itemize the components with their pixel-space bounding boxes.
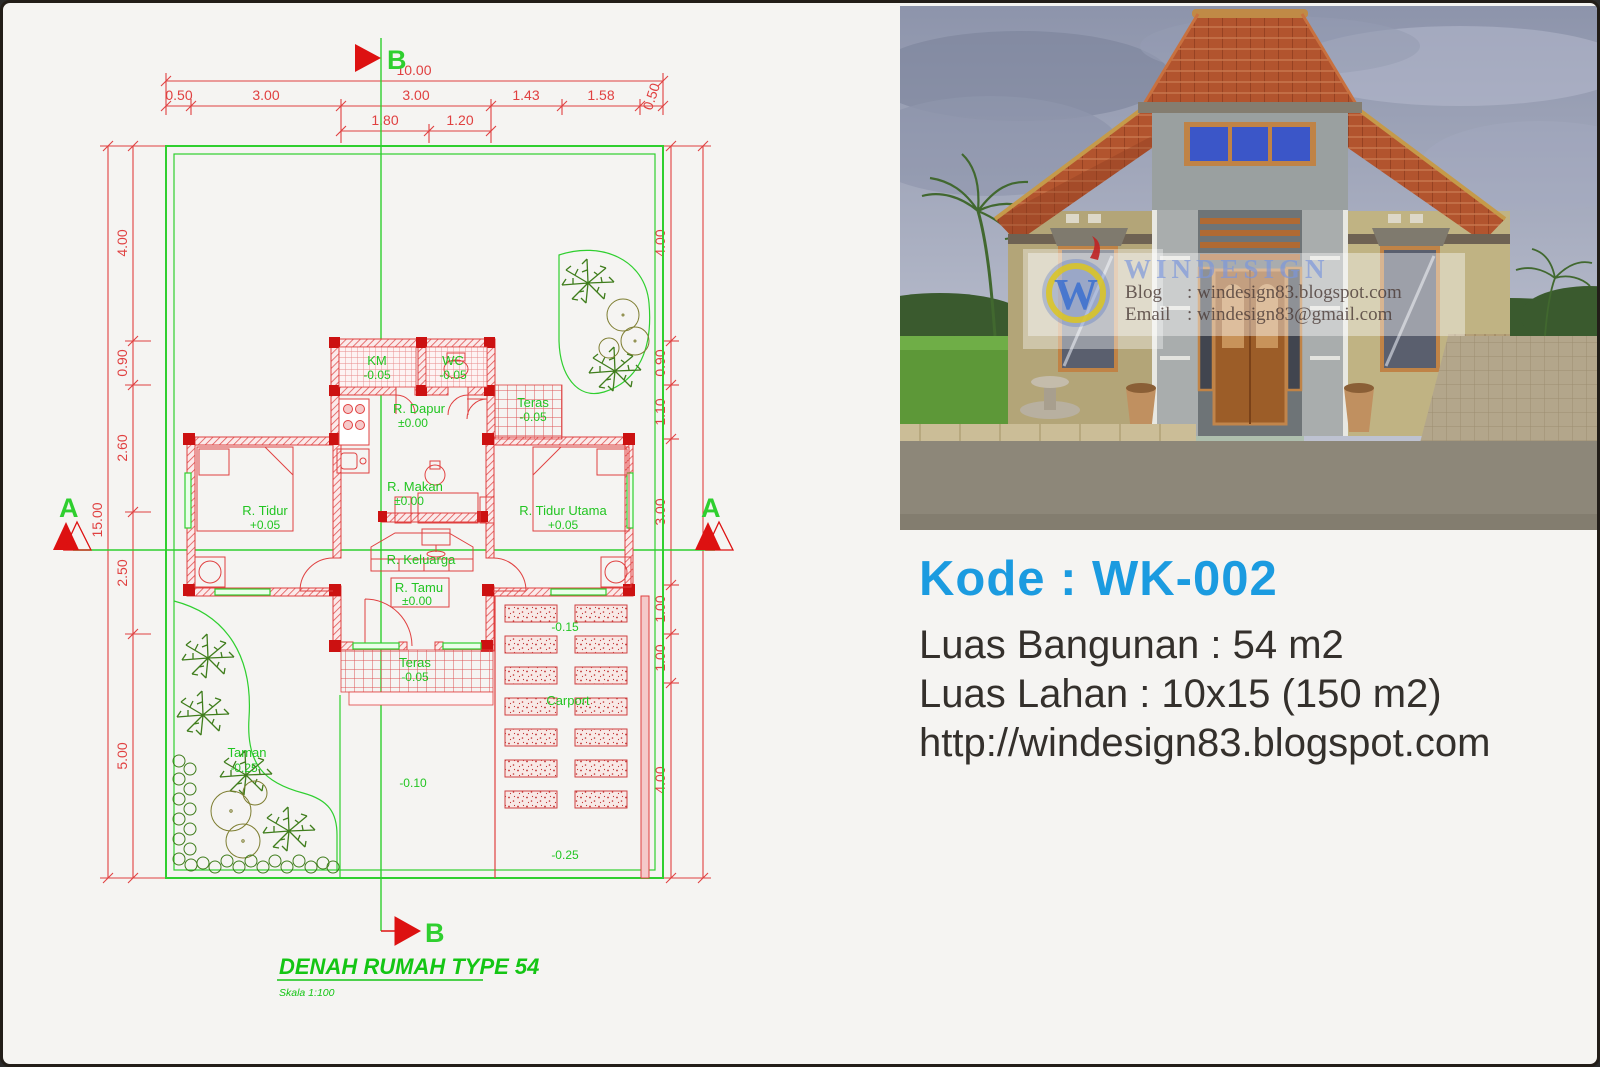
section-b-top-arrow [355, 44, 381, 72]
page: 10.00 0.50 3.00 3.00 1.43 1.58 0.50 1.80… [0, 0, 1600, 1067]
svg-text:2.50: 2.50 [114, 559, 130, 586]
svg-text:2.60: 2.60 [114, 434, 130, 461]
section-a-right-label: A [701, 493, 721, 523]
label-keluarga: R. Keluarga [387, 552, 456, 567]
section-a-left-label: A [59, 493, 79, 523]
watermark-blog-value: : windesign83.blogspot.com [1187, 282, 1402, 303]
watermark-logo-letter: W [1054, 270, 1098, 319]
svg-text:-0.05: -0.05 [363, 368, 391, 382]
garden-back [559, 250, 650, 393]
svg-text:3.00: 3.00 [402, 87, 429, 103]
spot-level-carport-upper: -0.15 [551, 620, 579, 634]
plan-scale: Skala 1:100 [279, 987, 335, 999]
label-teras-depan: Teras [399, 655, 431, 670]
dim-left-overall: 15.00 [89, 502, 105, 537]
svg-text:±0.00: ±0.00 [394, 494, 424, 508]
code-heading: Kode : WK-002 [919, 551, 1278, 607]
driveway [1416, 336, 1600, 458]
label-tamu: R. Tamu [395, 580, 443, 595]
svg-text:1.58: 1.58 [587, 87, 614, 103]
svg-text:0.50: 0.50 [639, 81, 663, 112]
curb [900, 424, 1196, 441]
svg-text:±0.00: ±0.00 [402, 594, 432, 608]
svg-text:-0.25: -0.25 [230, 761, 258, 775]
watermark-email-value: : windesign83@gmail.com [1187, 304, 1393, 325]
svg-text:3.00: 3.00 [252, 87, 279, 103]
svg-text:-0.05: -0.05 [401, 670, 429, 684]
carport [340, 596, 649, 878]
label-wc: WC [442, 353, 464, 368]
svg-text:-0.05: -0.05 [439, 368, 467, 382]
spot-level-walkway: -0.10 [399, 776, 427, 790]
label-carport: Carport [546, 693, 590, 708]
svg-text:-0.05: -0.05 [519, 410, 547, 424]
svg-text:0.90: 0.90 [114, 349, 130, 376]
info-block: Luas Bangunan : 54 m2 Luas Lahan : 10x15… [919, 621, 1490, 768]
svg-text:4.00: 4.00 [114, 229, 130, 256]
website-url: http://windesign83.blogspot.com [919, 719, 1490, 768]
front-step [349, 692, 493, 705]
spot-level-carport-lower: -0.25 [551, 848, 579, 862]
label-dapur: R. Dapur [393, 401, 446, 416]
label-teras-samping: Teras [517, 395, 549, 410]
label-tidur-utama: R. Tidur Utama [519, 503, 607, 518]
title-block: DENAH RUMAH TYPE 54 Skala 1:100 [277, 954, 539, 999]
land-area-line: Luas Lahan : 10x15 (150 m2) [919, 670, 1490, 719]
svg-text:1.20: 1.20 [446, 112, 473, 128]
label-tidur: R. Tidur [242, 503, 288, 518]
house-render: W WINDESIGN Blog : windesign83.blogspot.… [900, 6, 1600, 530]
watermark-brand: WINDESIGN [1124, 254, 1330, 284]
section-b-bottom-label: B [425, 918, 445, 948]
label-taman: Taman [227, 745, 266, 760]
svg-text:0.50: 0.50 [165, 87, 192, 103]
svg-text:1.43: 1.43 [512, 87, 539, 103]
section-b-top-label: B [387, 45, 407, 75]
plan-title: DENAH RUMAH TYPE 54 [279, 954, 539, 979]
svg-text:+0.05: +0.05 [548, 518, 579, 532]
building-area-line: Luas Bangunan : 54 m2 [919, 621, 1490, 670]
svg-text:1.80: 1.80 [371, 112, 398, 128]
watermark-email-label: Email [1125, 304, 1170, 325]
svg-text:5.00: 5.00 [114, 742, 130, 769]
label-makan: R. Makan [387, 479, 443, 494]
section-b-bottom-arrow [395, 917, 420, 945]
watermark-blog-label: Blog [1125, 282, 1162, 303]
svg-text:±0.00: ±0.00 [398, 416, 428, 430]
floor-plan: 10.00 0.50 3.00 3.00 1.43 1.58 0.50 1.80… [3, 3, 883, 1013]
label-km: KM [367, 353, 387, 368]
garden-front [173, 601, 339, 873]
svg-text:+0.05: +0.05 [250, 518, 281, 532]
